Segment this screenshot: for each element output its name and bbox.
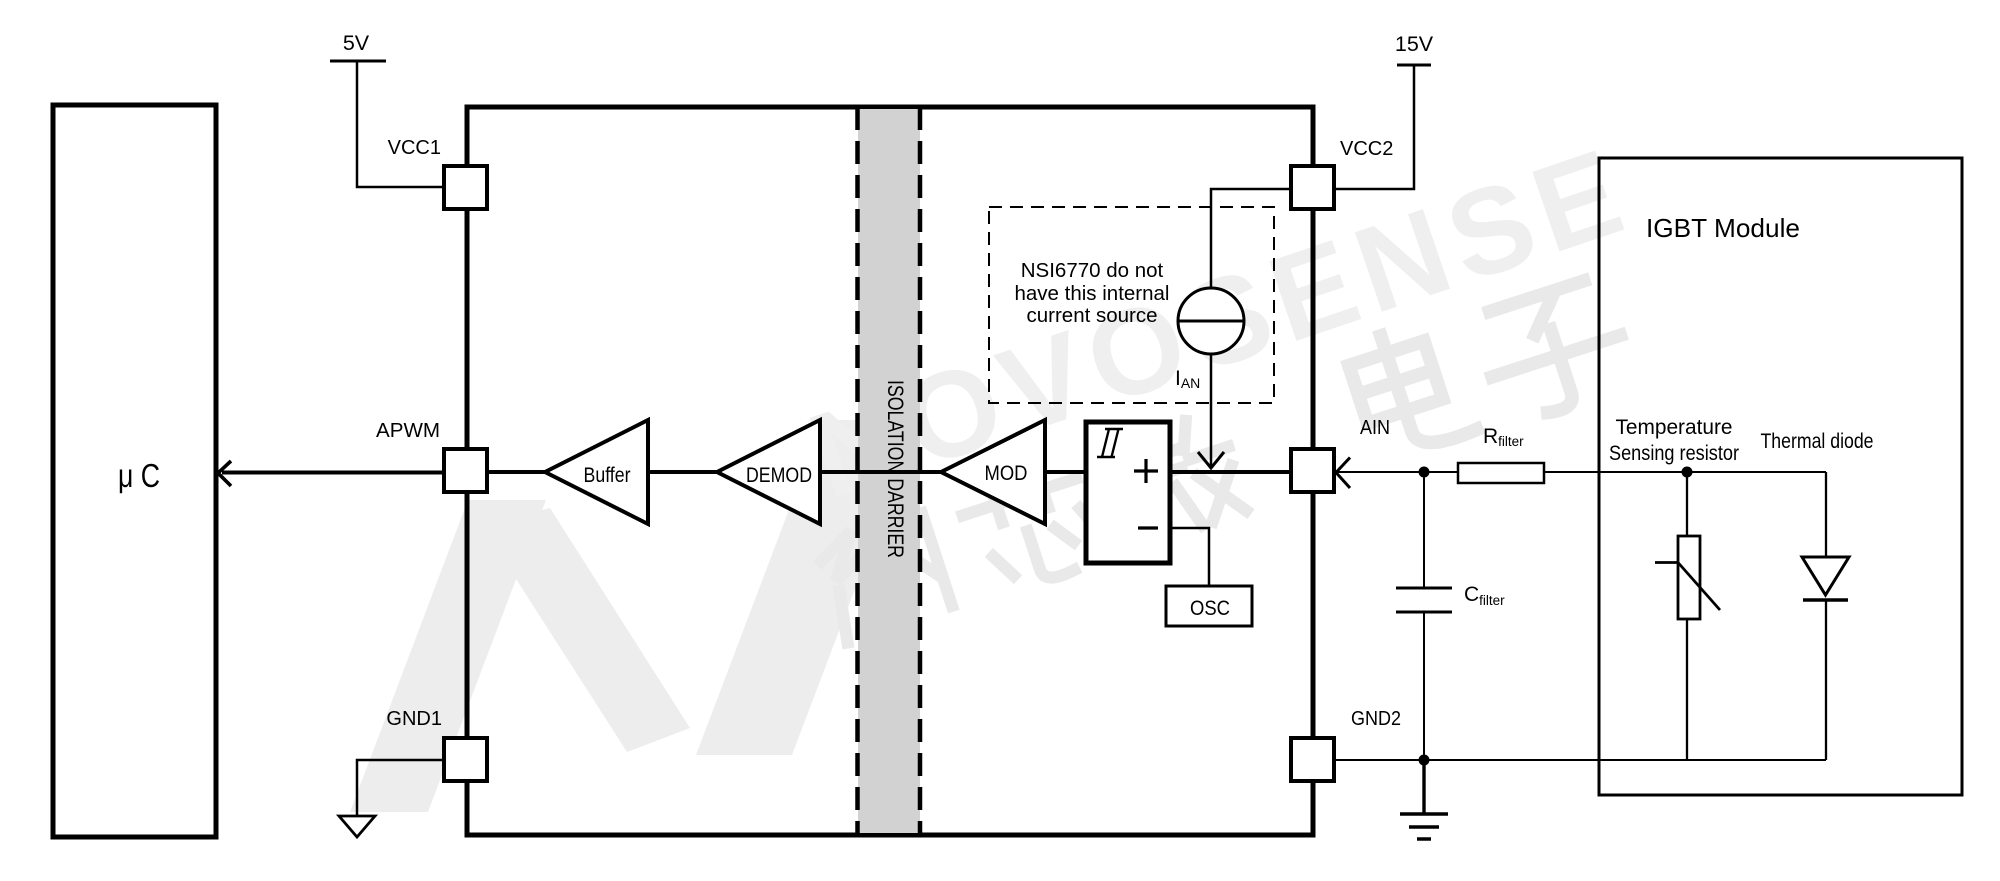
svg-text:DEMOD: DEMOD — [746, 464, 812, 487]
svg-text:15V: 15V — [1395, 32, 1434, 56]
svg-text:Sensing resistor: Sensing resistor — [1609, 442, 1739, 465]
svg-text:Buffer: Buffer — [584, 464, 631, 487]
svg-text:VCC2: VCC2 — [1340, 138, 1393, 160]
svg-text:APWM: APWM — [376, 420, 440, 442]
svg-text:GND1: GND1 — [386, 708, 442, 730]
svg-text:GND2: GND2 — [1351, 708, 1401, 730]
svg-text:ISOLATION DARRIER: ISOLATION DARRIER — [883, 380, 908, 558]
svg-text:AIN: AIN — [1360, 417, 1390, 439]
svg-text:MOD: MOD — [985, 462, 1028, 485]
svg-text:5V: 5V — [343, 31, 370, 55]
svg-text:OSC: OSC — [1190, 597, 1230, 620]
svg-text:NSI6770 do not: NSI6770 do not — [1021, 259, 1164, 282]
svg-text:Rfilter: Rfilter — [1483, 425, 1524, 449]
svg-text:Cfilter: Cfilter — [1464, 583, 1505, 608]
svg-text:have this internal: have this internal — [1015, 282, 1170, 305]
svg-text:IGBT Module: IGBT Module — [1646, 213, 1800, 243]
svg-text:μ C: μ C — [118, 457, 160, 494]
svg-text:Thermal diode: Thermal diode — [1761, 430, 1874, 453]
svg-text:VCC1: VCC1 — [388, 137, 441, 159]
svg-text:Temperature: Temperature — [1616, 416, 1733, 439]
svg-text:current source: current source — [1026, 304, 1157, 327]
